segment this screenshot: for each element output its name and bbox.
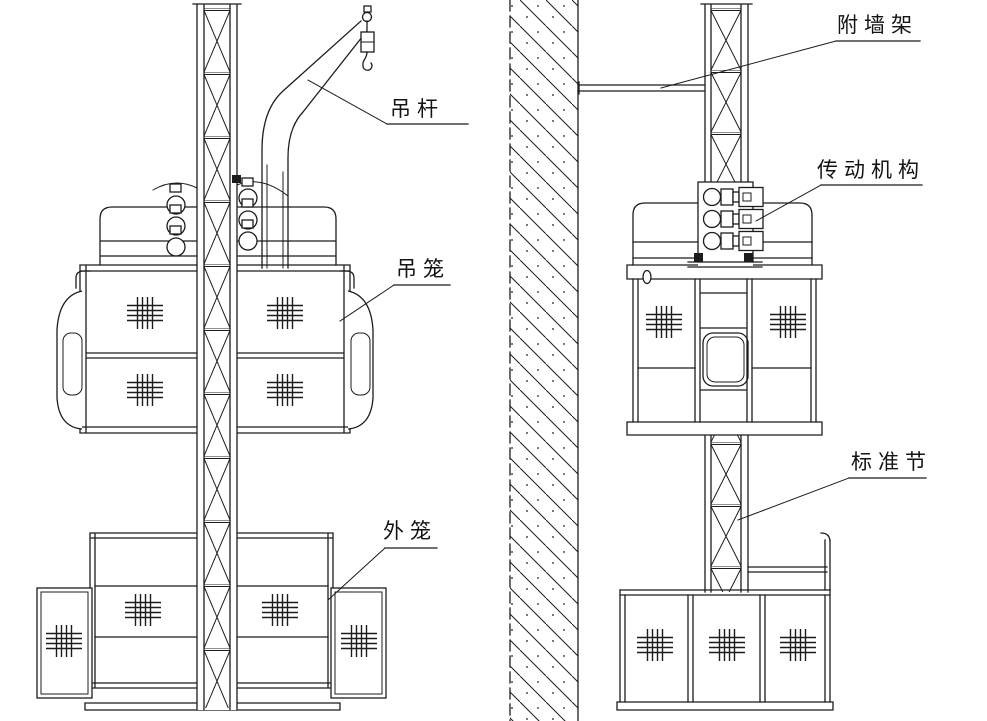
pulley <box>363 13 372 22</box>
label-wall-attachment-frame-text: 附墙架 <box>837 13 918 37</box>
drive-rollers-left <box>167 184 185 256</box>
wall-tie-bar <box>578 82 705 94</box>
motor-unit <box>704 188 764 207</box>
cage-bumper <box>348 291 373 429</box>
side-view <box>510 0 833 721</box>
outer-cage-door-left <box>37 588 92 698</box>
labels: 吊杆 吊笼 外笼 附墙架 传动机构 标准节 <box>308 13 932 600</box>
grille-symbol <box>125 594 161 626</box>
front-view <box>37 4 386 710</box>
label-standard-section-text: 标准节 <box>851 450 932 474</box>
mast-clamp <box>232 175 241 183</box>
hook-icon <box>363 52 372 70</box>
grille-symbol <box>709 629 745 661</box>
wall <box>510 0 578 721</box>
hoist-diagram-page: 吊杆 吊笼 外笼 附墙架 传动机构 标准节 <box>0 0 987 721</box>
label-cage-text: 吊笼 <box>396 257 450 281</box>
boom-tip <box>364 6 371 12</box>
label-boom: 吊杆 <box>308 80 468 124</box>
motor-unit <box>704 232 764 251</box>
drive-rollers-right <box>239 178 257 250</box>
grille-symbol <box>262 594 298 626</box>
outer-cage-side <box>617 590 833 710</box>
grille-symbol <box>637 629 673 661</box>
drive-mechanism <box>688 182 763 268</box>
label-standard-section: 标准节 <box>738 450 932 520</box>
label-wall-attachment-frame: 附墙架 <box>661 13 920 88</box>
leader-line <box>738 478 849 520</box>
label-drive-mechanism-text: 传动机构 <box>817 158 925 182</box>
label-outer-cage-text: 外笼 <box>383 519 437 543</box>
outer-cage-door-right <box>331 588 386 698</box>
latch-handle <box>643 271 651 284</box>
cage-bumper <box>57 291 82 429</box>
motor-unit <box>704 210 764 229</box>
leader-line <box>308 80 387 124</box>
hoist-diagram: 吊杆 吊笼 外笼 附墙架 传动机构 标准节 <box>0 0 987 721</box>
grille-symbol <box>780 629 816 661</box>
label-boom-text: 吊杆 <box>390 97 444 121</box>
guard-post <box>748 533 830 590</box>
mast-front <box>193 4 241 710</box>
